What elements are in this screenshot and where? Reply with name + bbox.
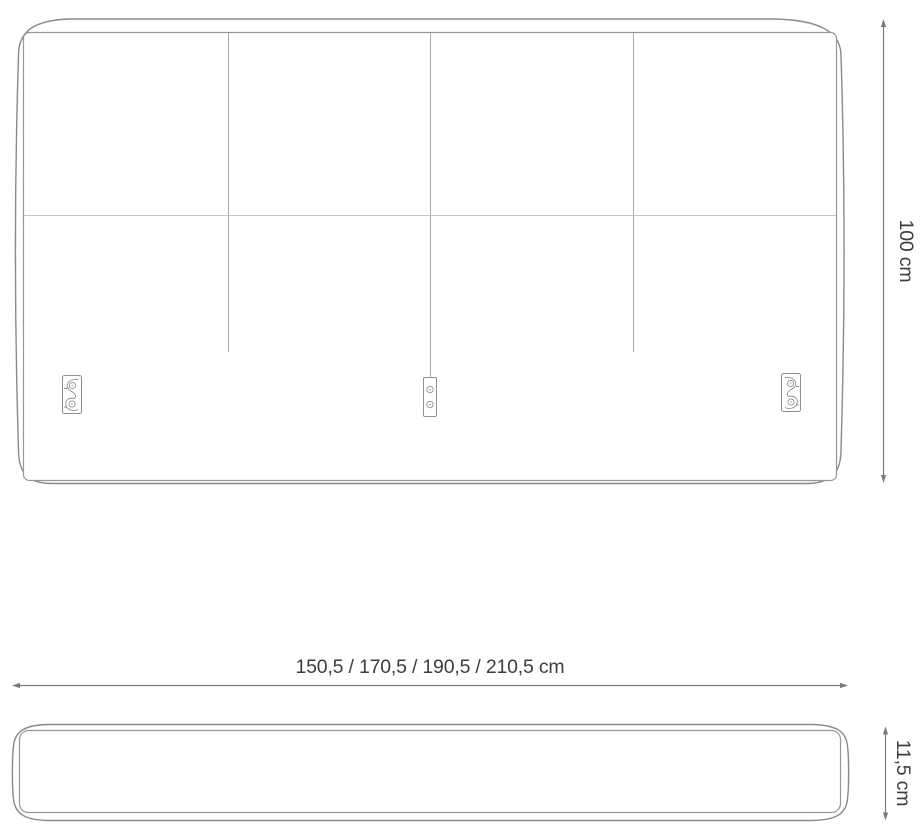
depth-dim-arrow-top [883, 727, 888, 735]
center-bracket-top-hole-center [429, 389, 431, 391]
center-bracket-bottom-hole-center [429, 404, 431, 406]
height-dim-arrow-top [881, 19, 886, 27]
depth-dim-arrow-bottom [883, 813, 888, 821]
left-mounting-bracket [63, 376, 82, 414]
width-dimension-label: 150,5 / 170,5 / 190,5 / 210,5 cm [296, 656, 565, 678]
top-view [12, 725, 848, 821]
width-dim-arrow-left [12, 683, 20, 688]
depth-dimension-label: 11,5 cm [892, 740, 914, 807]
height-dimension-label: 100 cm [895, 220, 917, 283]
right-mounting-bracket [782, 374, 801, 412]
width-dim-arrow-right [840, 683, 848, 688]
headboard-technical-drawing: 100 cm 150,5 / 170,5 / 190,5 / 210,5 cm … [0, 0, 920, 840]
center-bracket-plate [424, 378, 437, 417]
height-dim-arrow-bottom [881, 475, 886, 483]
width-dimension: 150,5 / 170,5 / 190,5 / 210,5 cm [12, 656, 848, 688]
depth-dimension: 11,5 cm [883, 727, 914, 821]
height-dimension: 100 cm [881, 19, 917, 483]
center-mounting-bracket [424, 378, 437, 417]
front-view [16, 19, 845, 484]
top-view-face [20, 731, 841, 813]
